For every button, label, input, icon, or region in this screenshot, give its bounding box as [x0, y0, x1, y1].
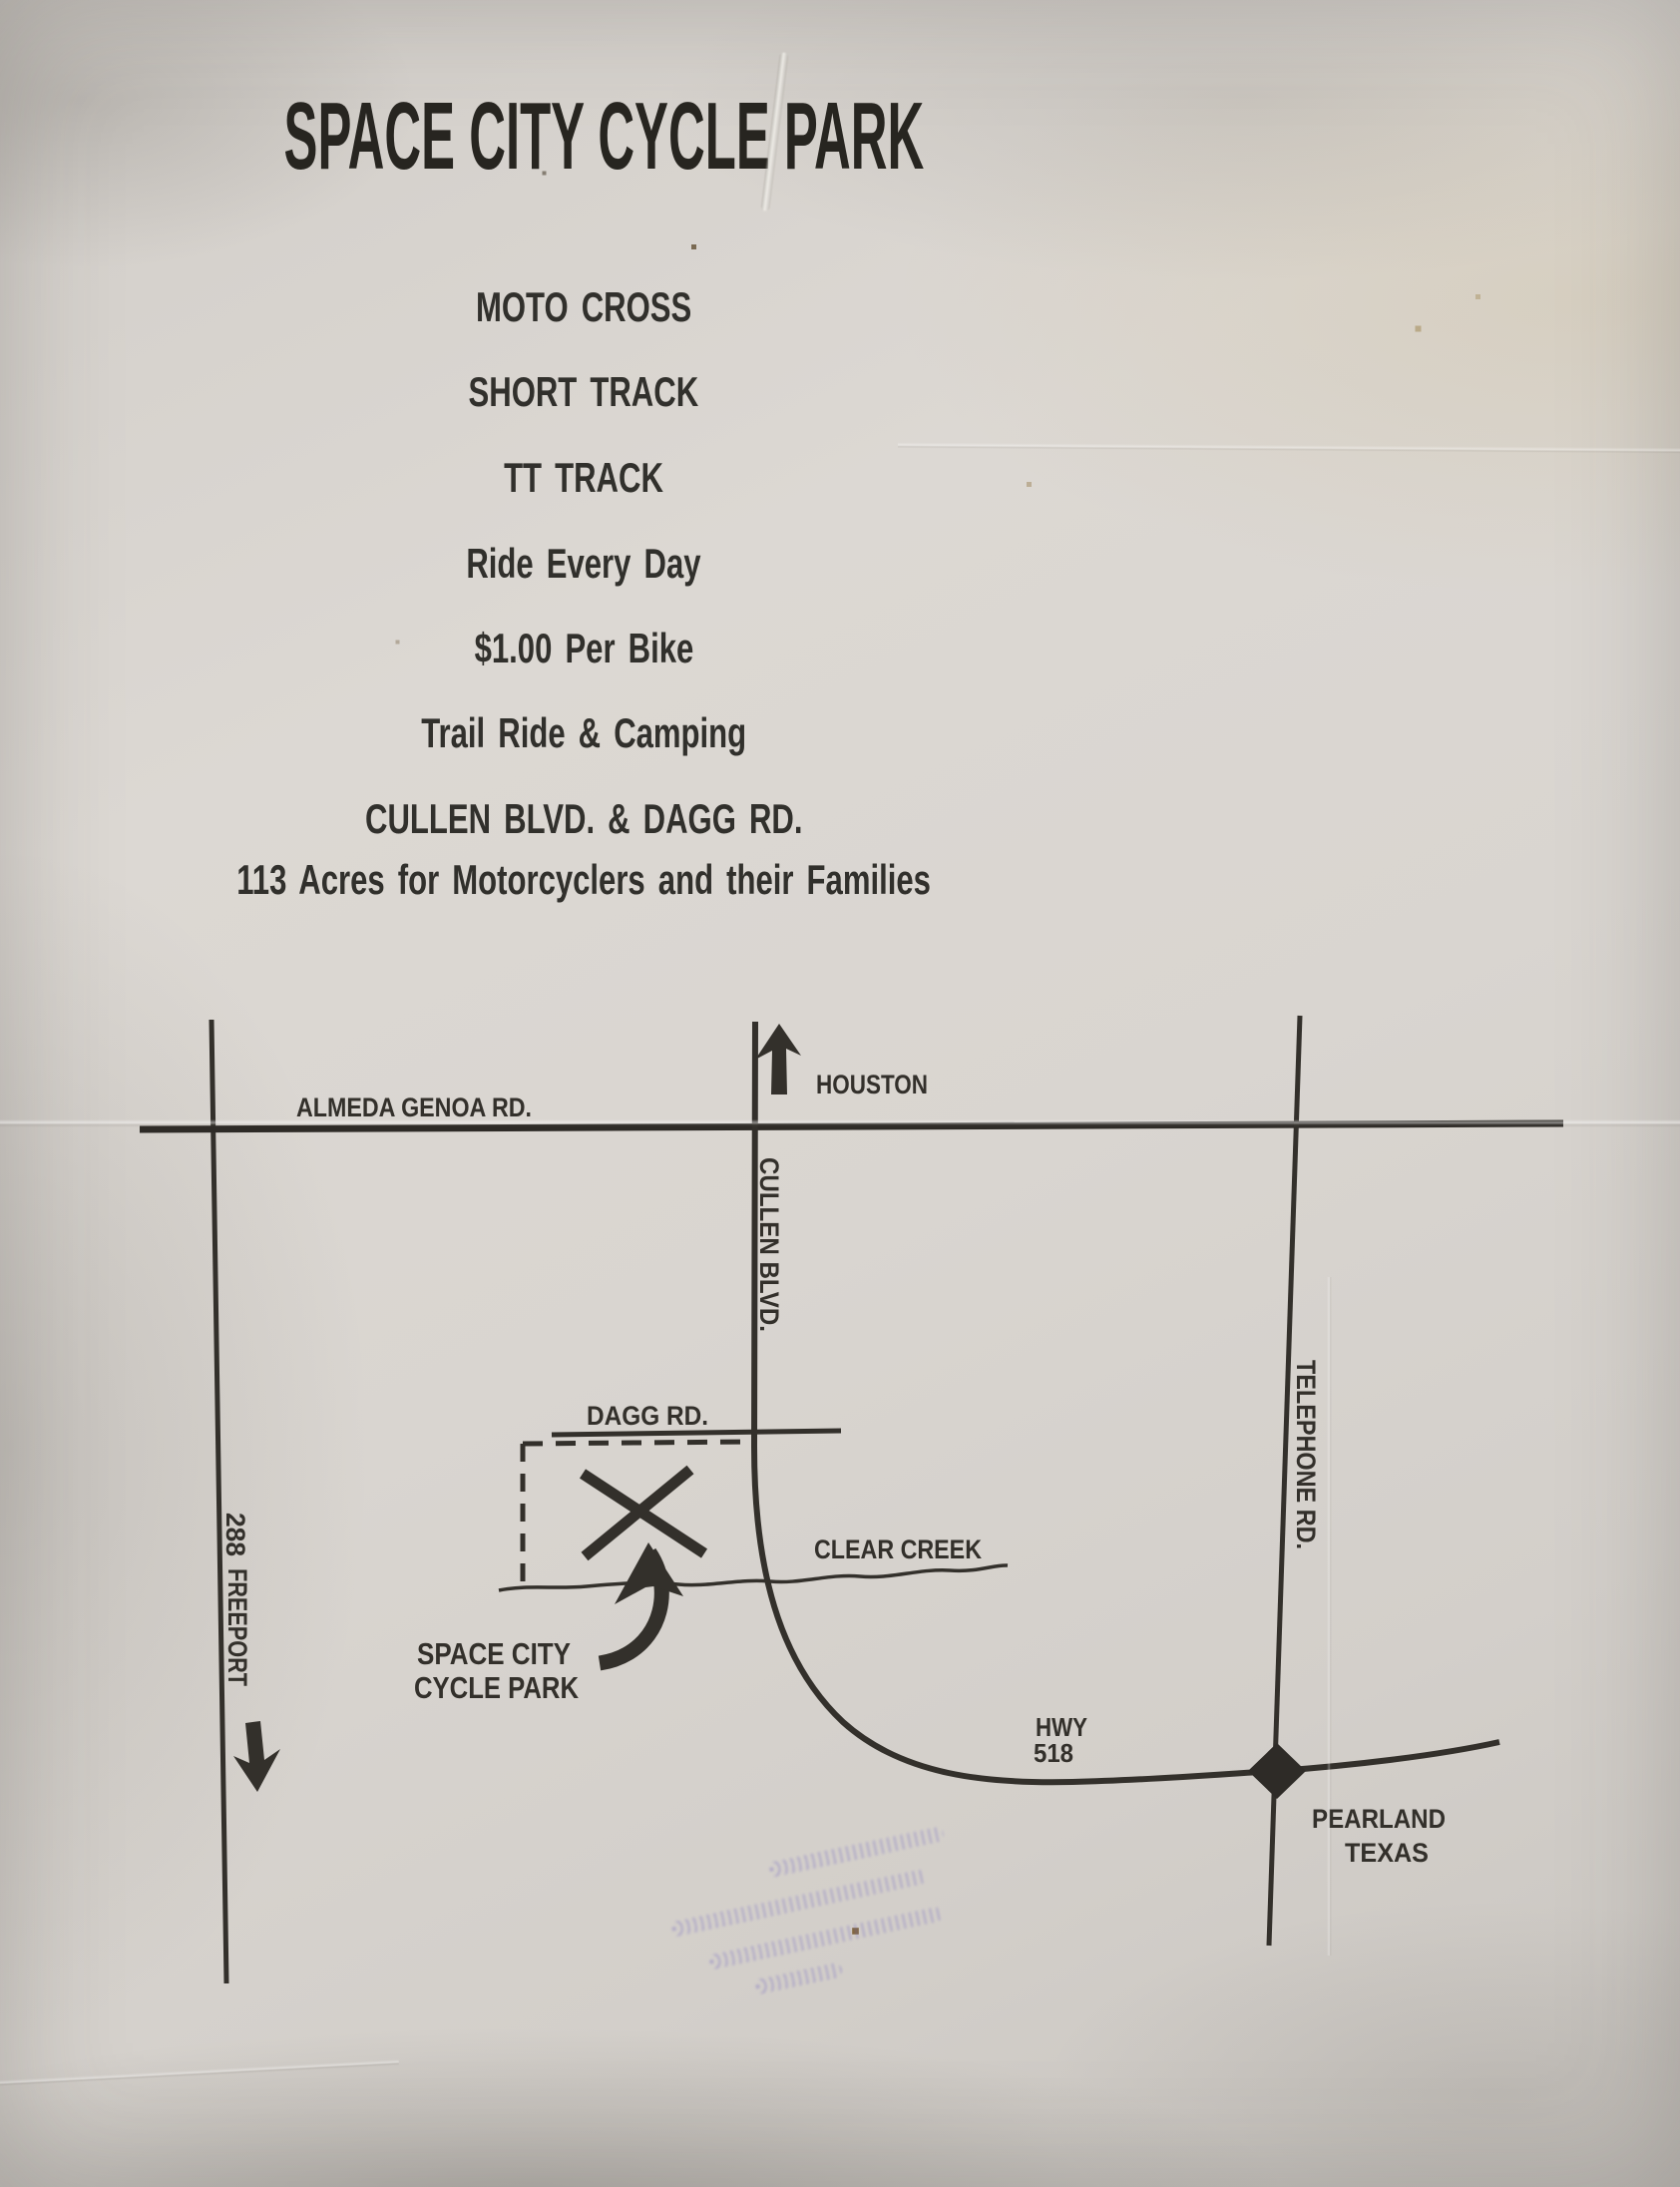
- label-cullen-blvd: CULLEN BLVD.: [754, 1157, 784, 1332]
- label-texas: TEXAS: [1345, 1838, 1429, 1868]
- label-288: 288: [220, 1513, 250, 1556]
- paper-specks: [0, 0, 1, 1]
- x-site-marker-icon: [583, 1470, 704, 1556]
- label-pearland: PEARLAND: [1312, 1804, 1446, 1834]
- south-arrow-icon: [233, 1721, 280, 1792]
- label-park-line1: SPACE CITY: [417, 1636, 571, 1671]
- label-houston: HOUSTON: [816, 1070, 928, 1099]
- label-telephone-rd: TELEPHONE RD.: [1291, 1360, 1321, 1549]
- park-boundary-top: [523, 1442, 752, 1444]
- curved-arrow-head: [615, 1542, 683, 1604]
- clear-creek-line: [499, 1565, 1008, 1590]
- label-almeda-genoa: ALMEDA GENOA RD.: [296, 1093, 532, 1122]
- label-dagg-rd: DAGG RD.: [587, 1401, 708, 1431]
- road-dagg: [552, 1431, 841, 1435]
- road-288-freeport: [211, 1020, 226, 1983]
- label-freeport: FREEPORT: [222, 1568, 252, 1686]
- label-park-line2: CYCLE PARK: [414, 1670, 580, 1705]
- label-518: 518: [1034, 1738, 1073, 1768]
- label-clear-creek: CLEAR CREEK: [814, 1534, 982, 1564]
- north-arrow-icon: [755, 1024, 801, 1094]
- road-cullen-hwy518: [754, 1022, 1499, 1782]
- road-almeda-genoa: [140, 1123, 1563, 1129]
- flyer-poster: SPACE CITY CYCLE PARK MOTO CROSS SHORT T…: [0, 0, 1680, 2187]
- diamond-intersection-icon: [1248, 1743, 1306, 1799]
